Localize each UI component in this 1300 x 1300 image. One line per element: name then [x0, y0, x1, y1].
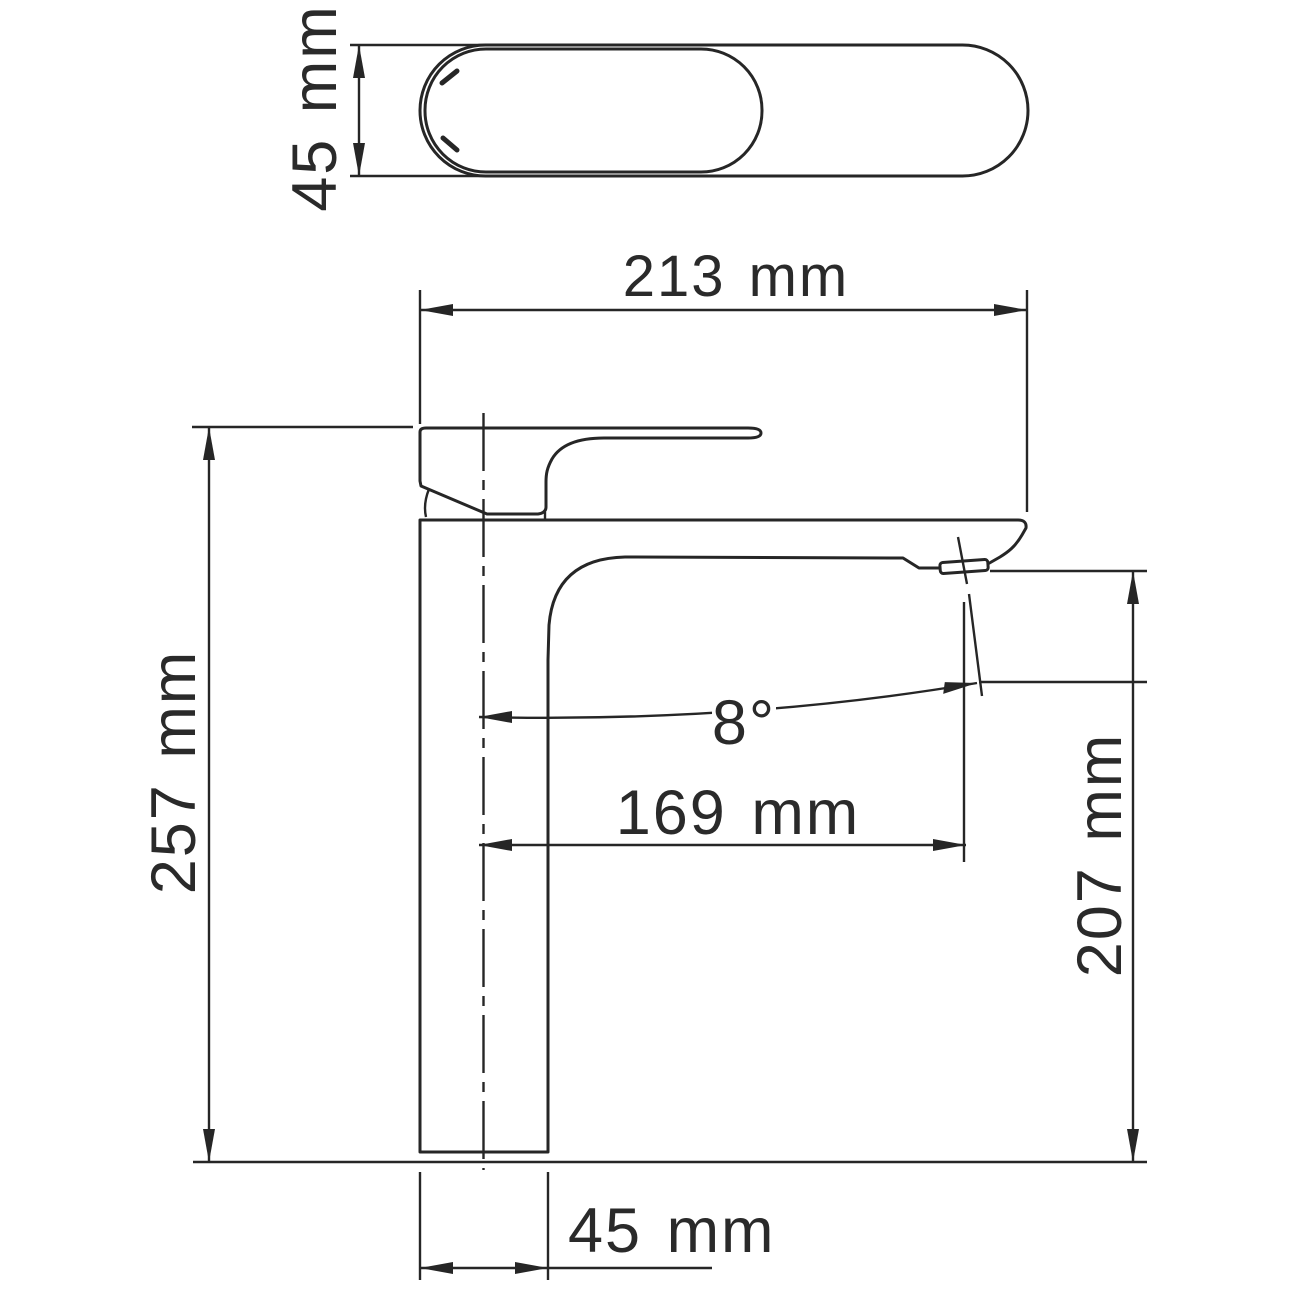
arrowhead-up [1127, 571, 1139, 604]
arrowhead-right [515, 1262, 548, 1274]
dim-label-outlet-height: 207 mm [1065, 733, 1135, 978]
dimension-base-width: 45 mm [420, 1172, 776, 1280]
faucet-technical-drawing: 45 mm 213 mm [0, 0, 1300, 1300]
arrowhead-up [203, 427, 215, 460]
dim-label-spout-reach: 169 mm [616, 778, 861, 848]
arrowhead-down [203, 1129, 215, 1162]
arrowhead-right [994, 304, 1027, 316]
arrowhead-up [353, 45, 365, 78]
dimension-outlet-height: 207 mm [990, 571, 1147, 1162]
dim-label-overall-length: 213 mm [623, 244, 850, 309]
dimension-spout-angle: 8° [479, 682, 1147, 758]
arrowhead-down [1127, 1129, 1139, 1162]
arrowhead-left [420, 1262, 453, 1274]
faucet-handle-outline [420, 428, 761, 514]
arrowhead-left [420, 304, 453, 316]
dim-label-overall-height: 257 mm [139, 650, 209, 895]
cap-detail-curve [425, 489, 429, 517]
handle-top-outline [425, 49, 762, 172]
top-view: 45 mm [280, 4, 1028, 212]
side-view: 213 mm 257 mm 8° 169 mm [139, 244, 1147, 1280]
dim-label-top-body-width: 45 mm [280, 4, 350, 212]
arrowhead-right [933, 839, 966, 851]
arrowhead-down [353, 143, 365, 176]
arrowhead-right [943, 682, 977, 694]
technical-drawing-page: 45 mm 213 mm [0, 0, 1300, 1300]
dimension-top-body-width: 45 mm [280, 4, 365, 212]
dimension-overall-height: 257 mm [139, 427, 413, 1162]
dim-label-spout-angle: 8° [712, 688, 776, 758]
dim-label-base-width: 45 mm [568, 1196, 776, 1266]
